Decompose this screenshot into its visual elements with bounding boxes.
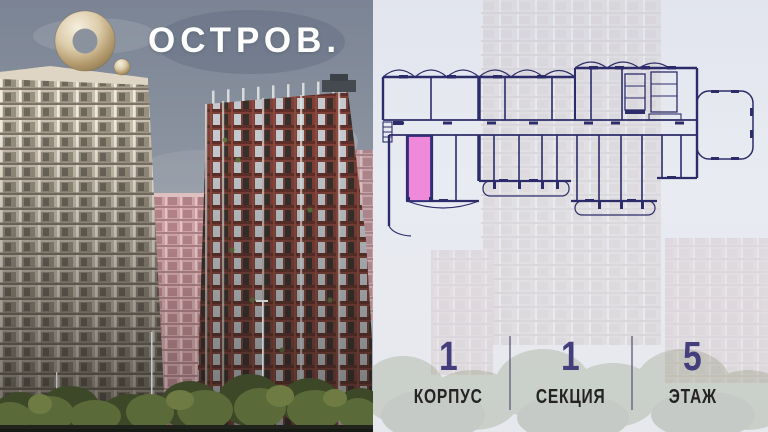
info-cell-korpus: 1 КОРПУС	[391, 334, 507, 412]
etazh-label: ЭТАЖ	[635, 384, 751, 410]
left-tower	[0, 66, 166, 432]
floor-plan	[379, 58, 757, 243]
etazh-value: 5	[635, 334, 751, 378]
promo-slide: ОСТРОВ.	[0, 0, 768, 432]
korpus-label: КОРПУС	[391, 384, 507, 410]
gold-ring-logo-icon	[52, 9, 132, 79]
unit-info-bar: 1 КОРПУС 1 СЕКЦИЯ 5 ЭТАЖ	[373, 334, 768, 412]
info-divider	[631, 336, 633, 410]
brand-logo: ОСТРОВ.	[52, 8, 341, 80]
korpus-value: 1	[391, 334, 507, 378]
info-cell-etazh: 5 ЭТАЖ	[635, 334, 751, 412]
info-cell-sektsiya: 1 СЕКЦИЯ	[513, 334, 629, 412]
sektsiya-value: 1	[513, 334, 629, 378]
right-red-tower	[196, 74, 372, 432]
brand-logo-text: ОСТРОВ.	[148, 21, 341, 61]
plan-panel: 1 КОРПУС 1 СЕКЦИЯ 5 ЭТАЖ	[373, 0, 768, 432]
selected-apartment[interactable]	[406, 136, 433, 202]
info-divider	[509, 336, 511, 410]
sektsiya-label: СЕКЦИЯ	[513, 384, 629, 410]
